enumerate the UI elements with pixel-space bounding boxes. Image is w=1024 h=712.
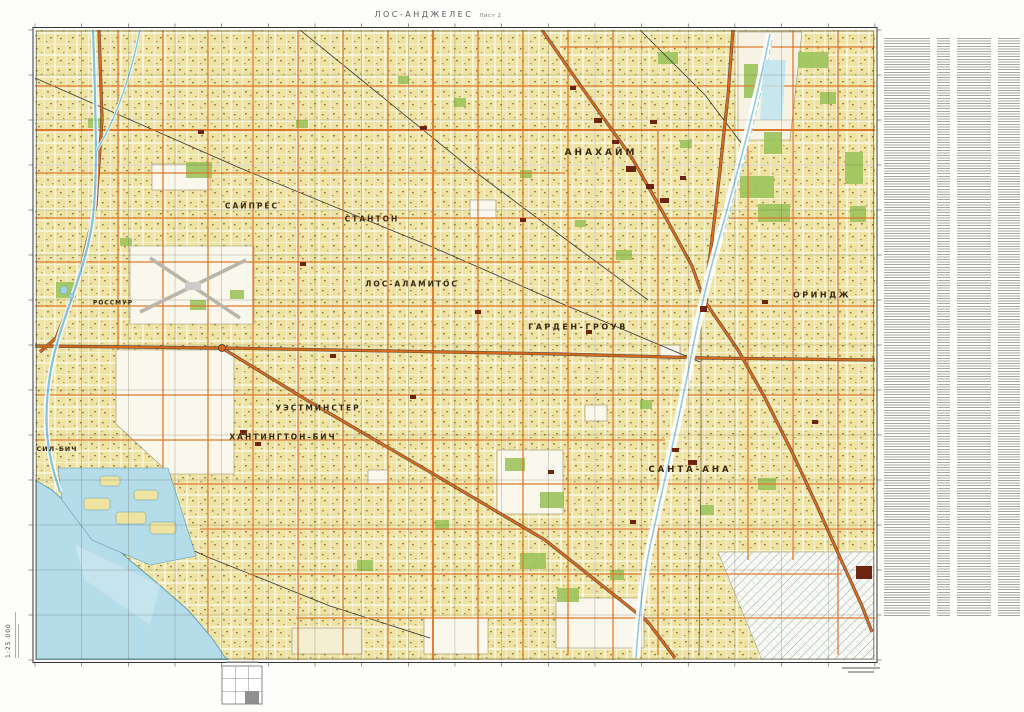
street-index-refs-col-1 [937, 38, 951, 618]
scale-block: 1:25 000 [3, 596, 19, 660]
credit-line [18, 624, 19, 658]
street-index [884, 38, 1020, 618]
street-index-names-col-2 [957, 38, 991, 618]
street-index-refs-col-2 [998, 38, 1020, 618]
interchange [219, 345, 226, 352]
street-index-names-col-1 [884, 38, 930, 618]
map-canvas [0, 0, 1024, 708]
sheet-number: Лист 2 [479, 13, 501, 19]
sheet-title: ЛОС-АНДЖЕЛЕСЛист 2 [0, 10, 876, 19]
print-note-line [848, 671, 874, 673]
pond [60, 286, 68, 294]
scale-label: 1:25 000 [5, 623, 12, 658]
map-sheet: ЛОС-АНДЖЕЛЕСЛист 2 [0, 0, 1024, 708]
credit-line [15, 612, 16, 658]
print-note-line [842, 667, 880, 669]
pond [69, 294, 74, 299]
current-sheet-cell [245, 692, 259, 704]
sheet-index-diagram [222, 661, 262, 704]
sheet-title-text: ЛОС-АНДЖЕЛЕС [374, 10, 473, 19]
apron [185, 282, 201, 290]
